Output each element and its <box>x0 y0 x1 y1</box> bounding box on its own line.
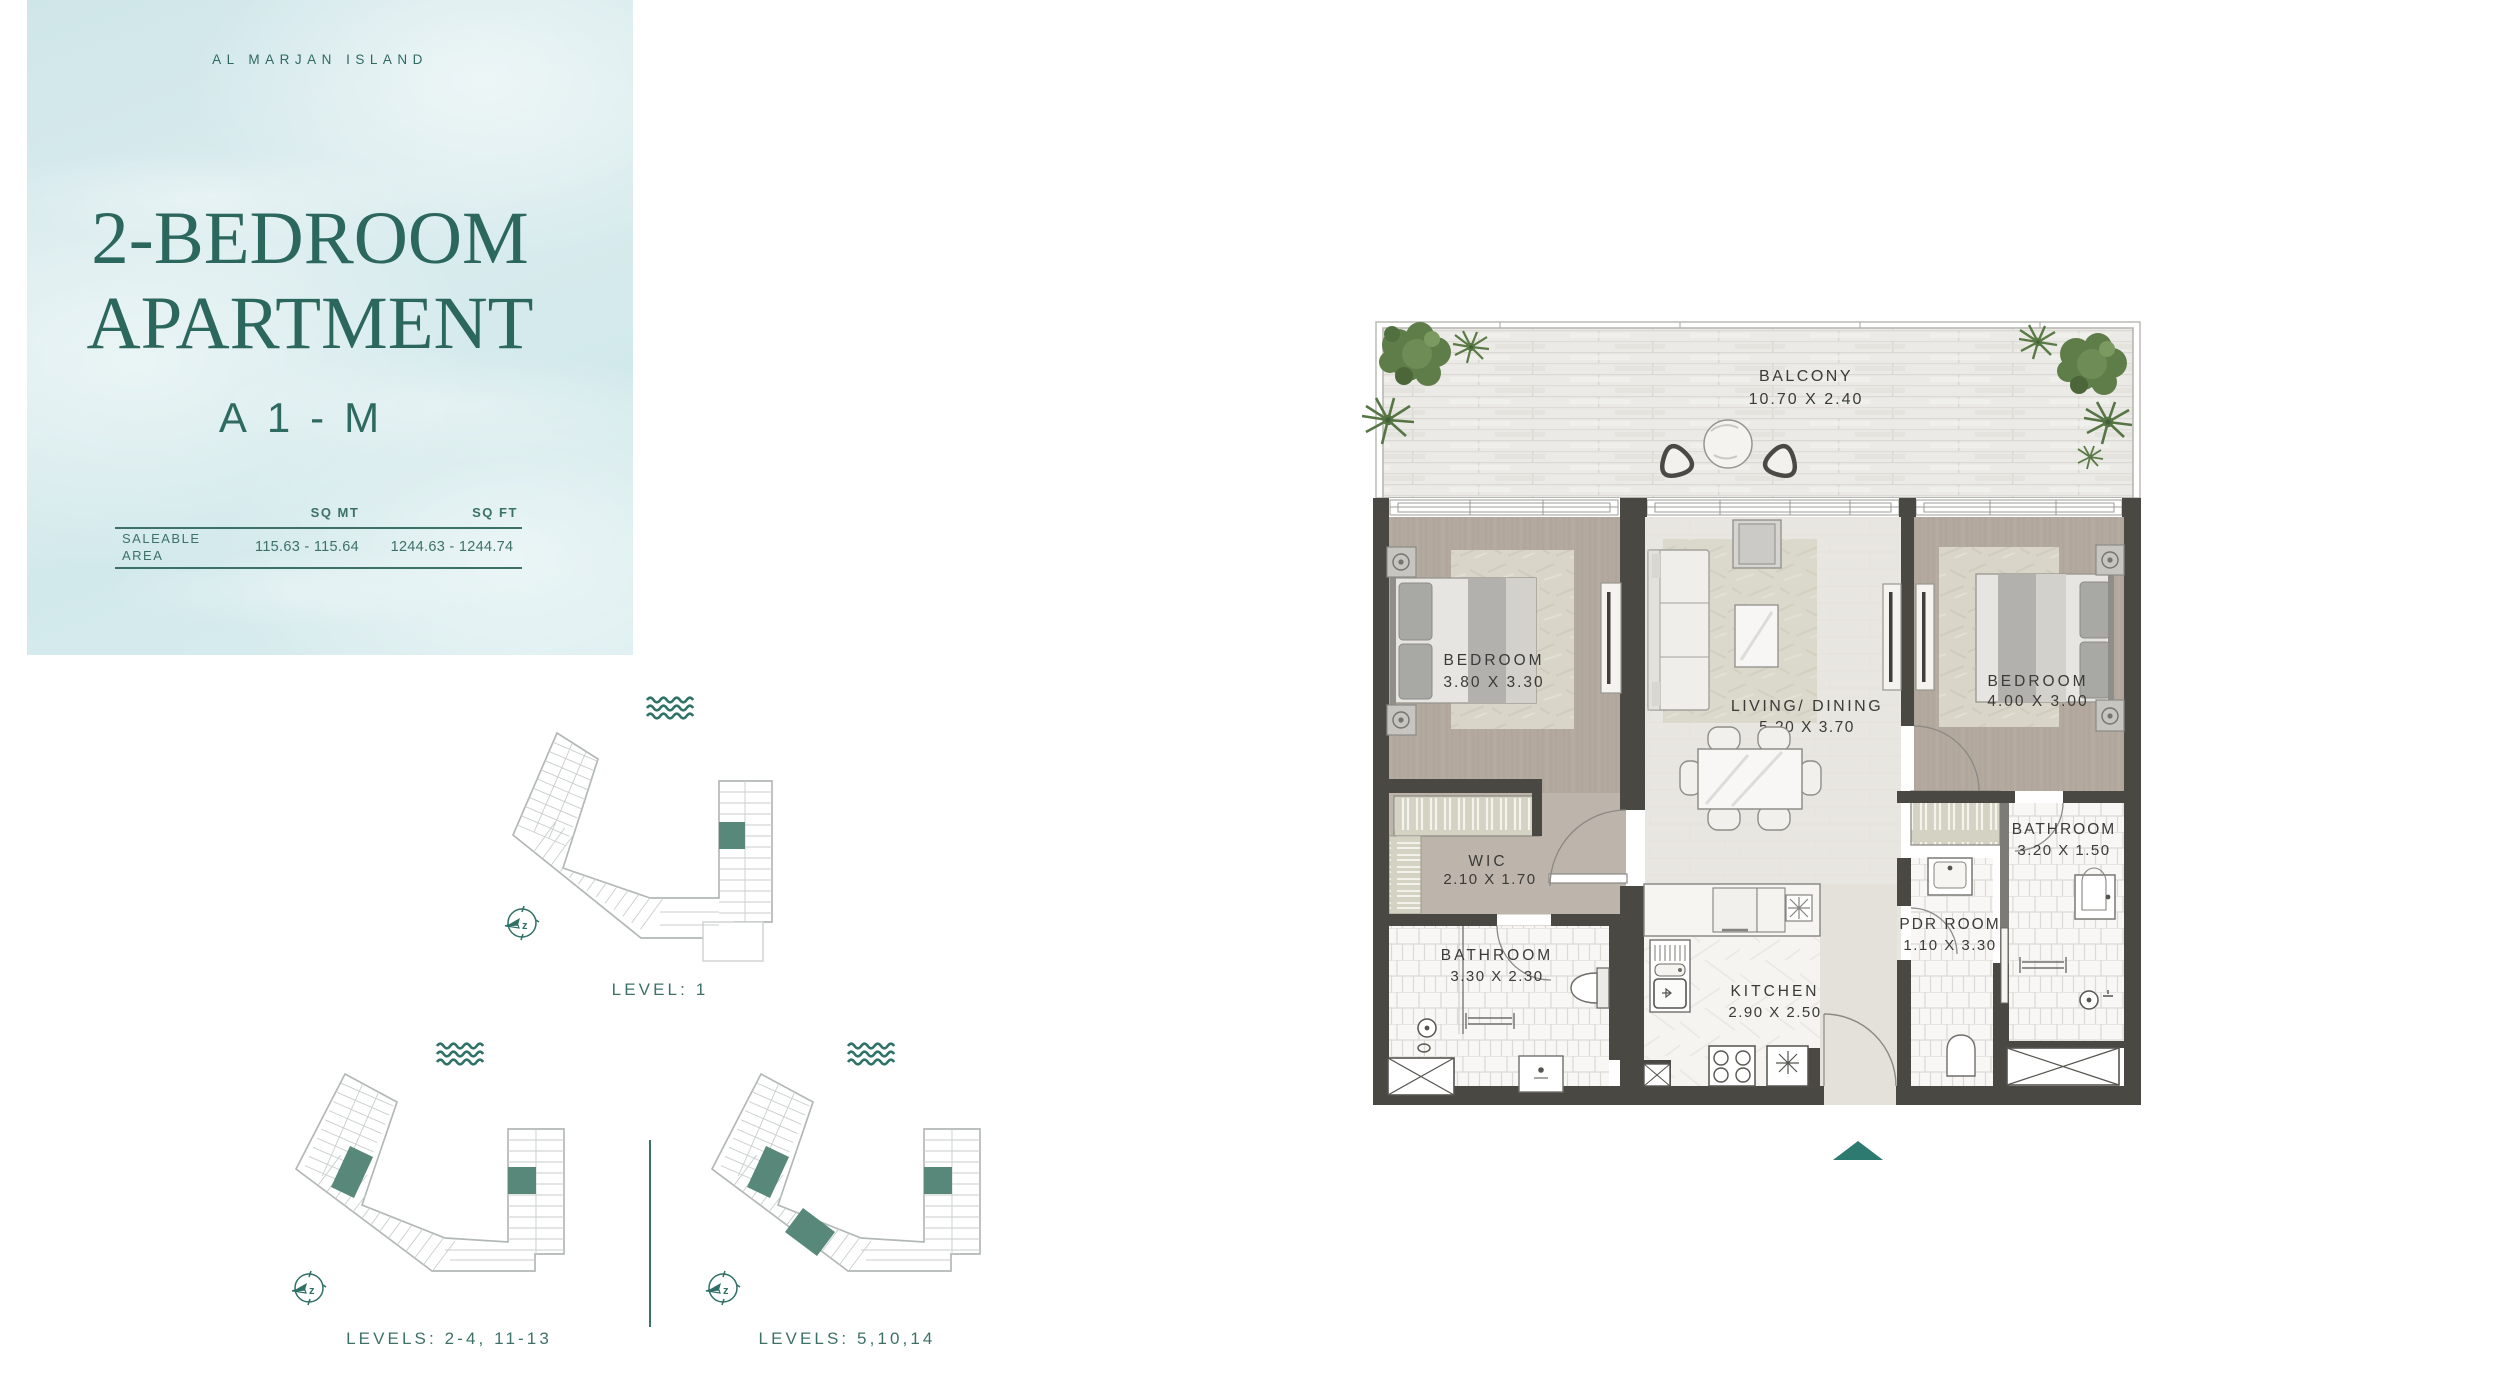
svg-text:BATHROOM: BATHROOM <box>2012 821 2116 838</box>
svg-text:3.20 X 1.50: 3.20 X 1.50 <box>2017 842 2110 859</box>
svg-text:LIVING/ DINING: LIVING/ DINING <box>1731 698 1883 715</box>
svg-text:KITCHEN: KITCHEN <box>1730 983 1819 1000</box>
svg-text:BALCONY: BALCONY <box>1759 368 1853 385</box>
svg-text:BEDROOM: BEDROOM <box>1987 673 2088 690</box>
svg-text:PDR ROOM: PDR ROOM <box>1899 916 2000 933</box>
svg-text:2.90 X 2.50: 2.90 X 2.50 <box>1728 1004 1821 1021</box>
svg-text:1.10 X 3.30: 1.10 X 3.30 <box>1903 937 1996 954</box>
svg-text:10.70 X 2.40: 10.70 X 2.40 <box>1749 391 1864 408</box>
svg-text:WIC: WIC <box>1468 853 1507 870</box>
svg-text:LEVEL: 1: LEVEL: 1 <box>612 980 709 999</box>
svg-text:2.10 X 1.70: 2.10 X 1.70 <box>1443 871 1536 888</box>
svg-text:LEVELS: 2-4, 11-13: LEVELS: 2-4, 11-13 <box>346 1329 552 1348</box>
svg-text:LEVELS: 5,10,14: LEVELS: 5,10,14 <box>759 1329 936 1348</box>
svg-text:4.00 X 3.00: 4.00 X 3.00 <box>1987 693 2088 710</box>
svg-text:BATHROOM: BATHROOM <box>1441 947 1553 964</box>
svg-text:3.30 X 2.30: 3.30 X 2.30 <box>1450 968 1543 985</box>
svg-text:BEDROOM: BEDROOM <box>1443 652 1544 669</box>
svg-text:3.80 X 3.30: 3.80 X 3.30 <box>1443 674 1544 691</box>
